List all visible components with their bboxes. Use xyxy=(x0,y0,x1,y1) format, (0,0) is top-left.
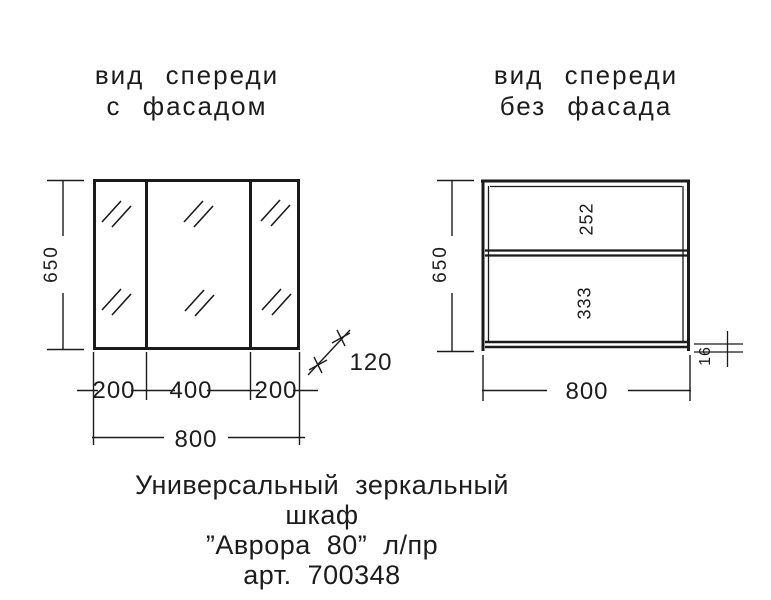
right-view-title-line1: вид спереди xyxy=(494,60,678,91)
left-height-dim-label: 650 xyxy=(41,245,63,283)
thickness-dim-label: 16 xyxy=(697,346,715,366)
middle-shelf xyxy=(485,251,687,256)
left-width-dim-label: 800 xyxy=(174,426,217,454)
bottom-shelf xyxy=(485,342,687,347)
left-door-dim-label: 200 xyxy=(92,377,135,405)
product-caption: Универсальный зеркальный шкаф ”Аврора 80… xyxy=(98,470,547,590)
left-cabinet-outline xyxy=(95,179,299,349)
left-view-title-line1: вид спереди xyxy=(95,60,279,91)
top-section-dim-label: 252 xyxy=(577,202,598,235)
right-height-dim-label: 650 xyxy=(430,245,452,283)
glass-hatch-icon xyxy=(262,289,291,315)
left-view-title-line2: с фасадом xyxy=(95,91,279,122)
left-view-title: вид спереди с фасадом xyxy=(95,60,279,122)
right-view-title: вид спереди без фасада xyxy=(494,60,678,122)
glass-hatch-icons xyxy=(102,200,291,316)
right-width-dim-label: 800 xyxy=(565,378,608,406)
right-door-dim-label: 200 xyxy=(254,377,297,405)
depth-dim-label: 120 xyxy=(349,349,392,377)
product-name: Универсальный зеркальный шкаф xyxy=(98,470,547,530)
product-model: ”Аврора 80” л/пр xyxy=(98,530,547,560)
glass-hatch-icon xyxy=(102,201,131,227)
glass-hatch-icon xyxy=(261,200,290,226)
glass-hatch-icon xyxy=(184,201,213,227)
middle-door-dim-label: 400 xyxy=(169,377,212,405)
right-view-title-line2: без фасада xyxy=(494,91,678,122)
depth-dim-line xyxy=(308,330,350,375)
product-article: арт. 700348 xyxy=(98,560,547,590)
glass-hatch-icon xyxy=(102,289,131,315)
glass-hatch-icon xyxy=(185,290,214,316)
bottom-section-dim-label: 333 xyxy=(575,286,596,319)
technical-drawing-page: вид спереди с фасадом вид спереди без фа… xyxy=(0,0,771,600)
